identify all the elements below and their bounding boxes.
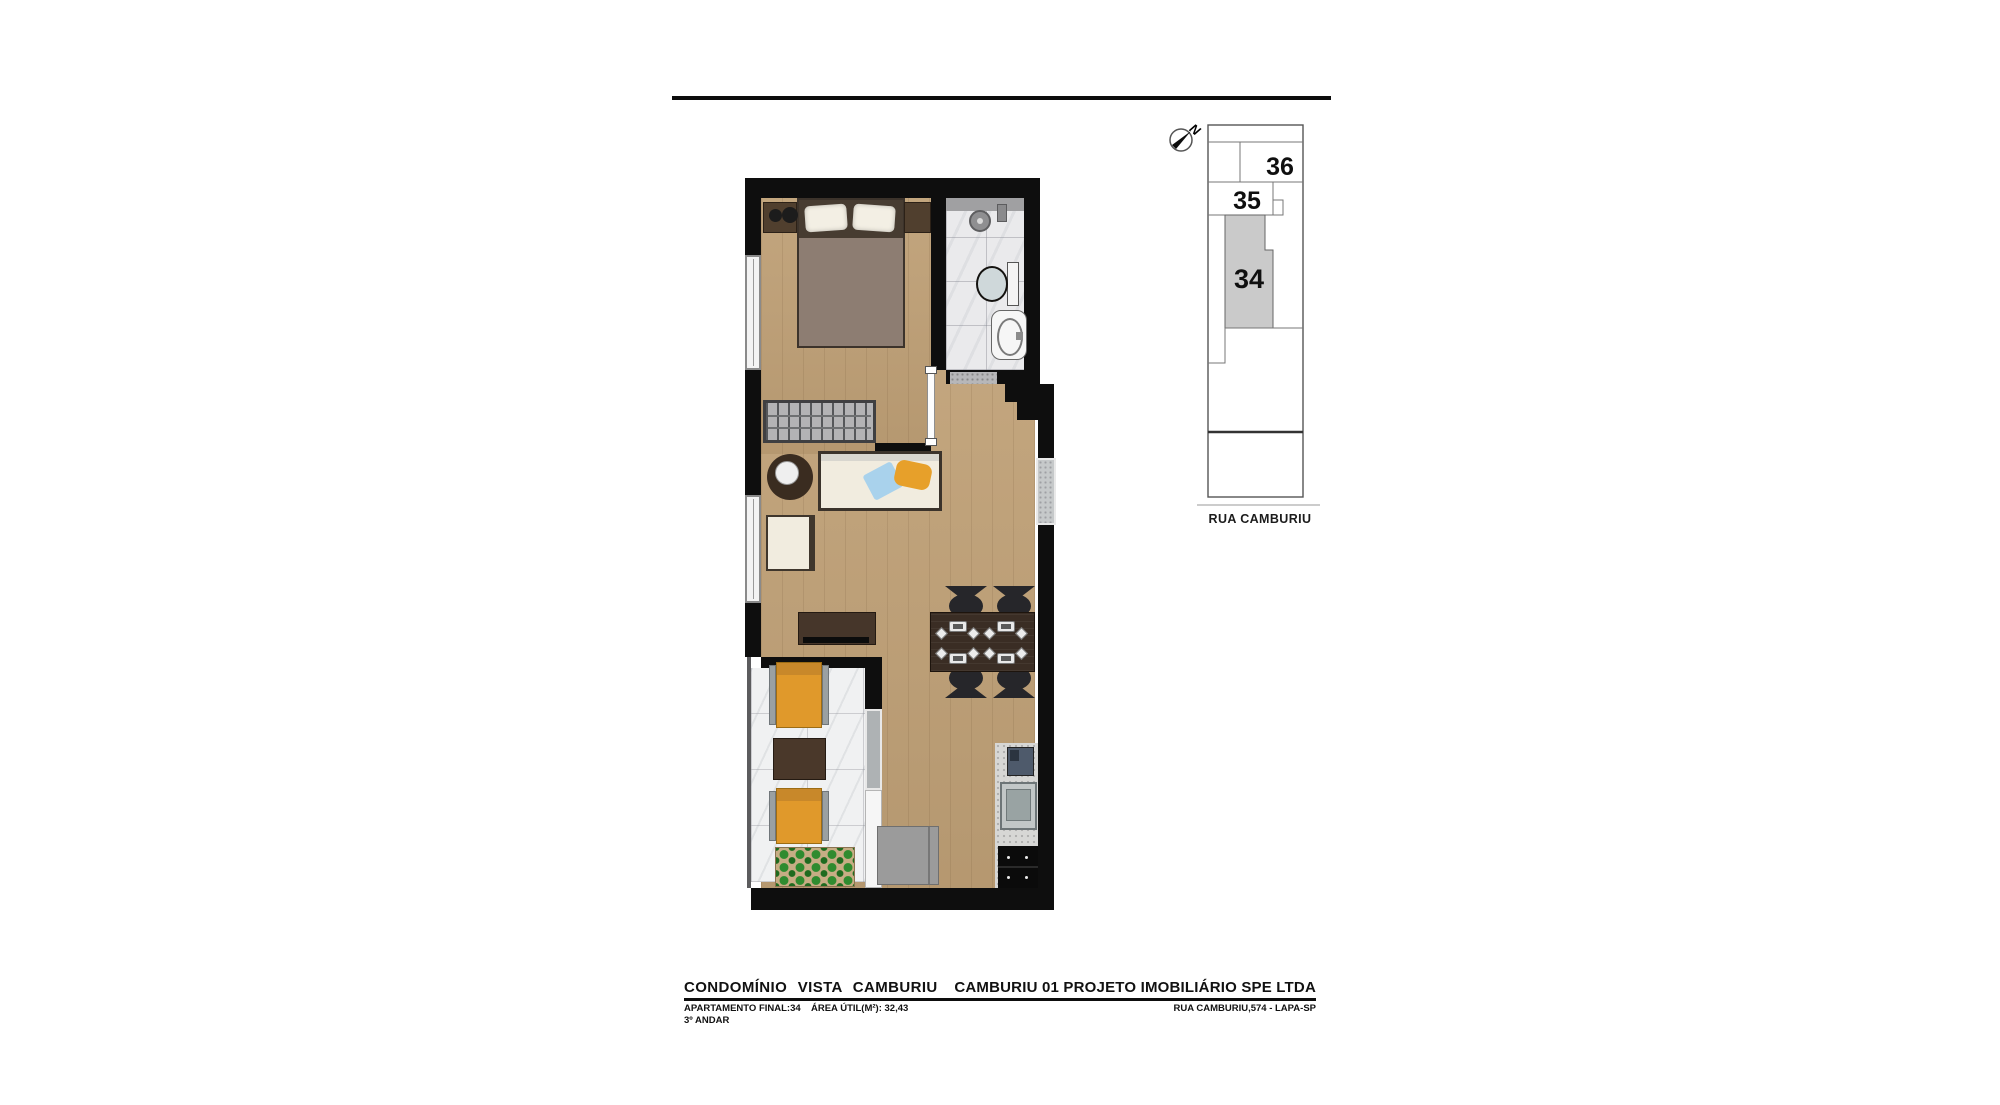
shower-head-icon — [969, 210, 991, 232]
sofa-back — [821, 454, 939, 461]
shower-strip — [946, 198, 1024, 211]
bathroom-door-threshold — [950, 372, 997, 384]
apartment-number: APARTAMENTO FINAL:34 — [684, 1003, 811, 1014]
key-plan-svg: N 36 35 34 RUA CAMBURIU — [1160, 112, 1328, 532]
door-jamb-bottom — [925, 438, 937, 446]
wall-top — [745, 178, 1040, 198]
wall-bedroom-bathroom — [931, 198, 946, 370]
top-rule — [672, 96, 1331, 100]
balcony-armchair-1 — [769, 662, 829, 728]
living-window-left — [745, 495, 761, 603]
balcony-armchair-2 — [769, 788, 829, 844]
floor-number: 3º ANDAR — [684, 1015, 1316, 1026]
sofa — [818, 451, 942, 511]
toilet — [976, 266, 1008, 302]
bedroom-sliding-door — [927, 372, 935, 441]
bedside-lamp — [769, 209, 782, 222]
toilet-tank — [1007, 262, 1019, 306]
usable-area: ÁREA ÚTIL(M²): 32,43 — [811, 1003, 908, 1014]
pillow-left — [804, 204, 848, 233]
wall-balcony-side — [865, 657, 882, 709]
dining-table — [930, 612, 1035, 672]
double-bed — [797, 198, 905, 348]
living-window-right — [1036, 458, 1056, 525]
north-label: N — [1187, 121, 1204, 139]
bedside-lamp-2 — [782, 207, 798, 223]
tv-cabinet — [798, 612, 876, 645]
condominium-title: CONDOMÍNIO VISTA CAMBURIU — [684, 979, 938, 996]
round-side-table — [767, 454, 813, 500]
street-label: RUA CAMBURIU — [1209, 512, 1312, 526]
planter-vertical-garden — [775, 847, 855, 887]
wardrobe — [763, 400, 876, 443]
door-jamb-top — [925, 366, 937, 374]
pillow-right — [852, 204, 896, 233]
shower-column — [997, 204, 1007, 222]
title-rule — [684, 998, 1316, 1001]
key-plan: N 36 35 34 RUA CAMBURIU — [1160, 112, 1328, 532]
wall-step-1 — [1005, 384, 1054, 402]
unit-34-label: 34 — [1234, 264, 1264, 294]
north-needle-icon — [1172, 131, 1191, 149]
unit-36-label: 36 — [1266, 153, 1294, 181]
balcony-rail — [747, 657, 751, 888]
tv — [803, 637, 869, 643]
wall-bottom — [751, 888, 1054, 910]
refrigerator — [877, 826, 939, 885]
nightstand-right — [904, 202, 931, 233]
balcony-coffee-table — [773, 738, 826, 780]
cooktop — [998, 846, 1038, 888]
bedroom-window — [745, 255, 761, 370]
unit-35-label: 35 — [1233, 187, 1261, 215]
armchair-pouf — [766, 515, 815, 571]
street-address: RUA CAMBURIU,574 - LAPA-SP — [1173, 1003, 1316, 1014]
kitchen-appliance — [1007, 747, 1034, 776]
title-block: CONDOMÍNIO VISTA CAMBURIU CAMBURIU 01 PR… — [684, 979, 1316, 1026]
balcony-glass-door — [865, 709, 882, 790]
apartment-floor-plan — [745, 178, 1058, 910]
developer-title: CAMBURIU 01 PROJETO IMOBILIÁRIO SPE LTDA — [954, 979, 1316, 996]
bathroom-sink — [991, 310, 1027, 360]
kitchen-sink — [1000, 782, 1037, 830]
floor-plan-sheet: N 36 35 34 RUA CAMBURIU CONDOMÍNI — [0, 0, 2000, 1105]
